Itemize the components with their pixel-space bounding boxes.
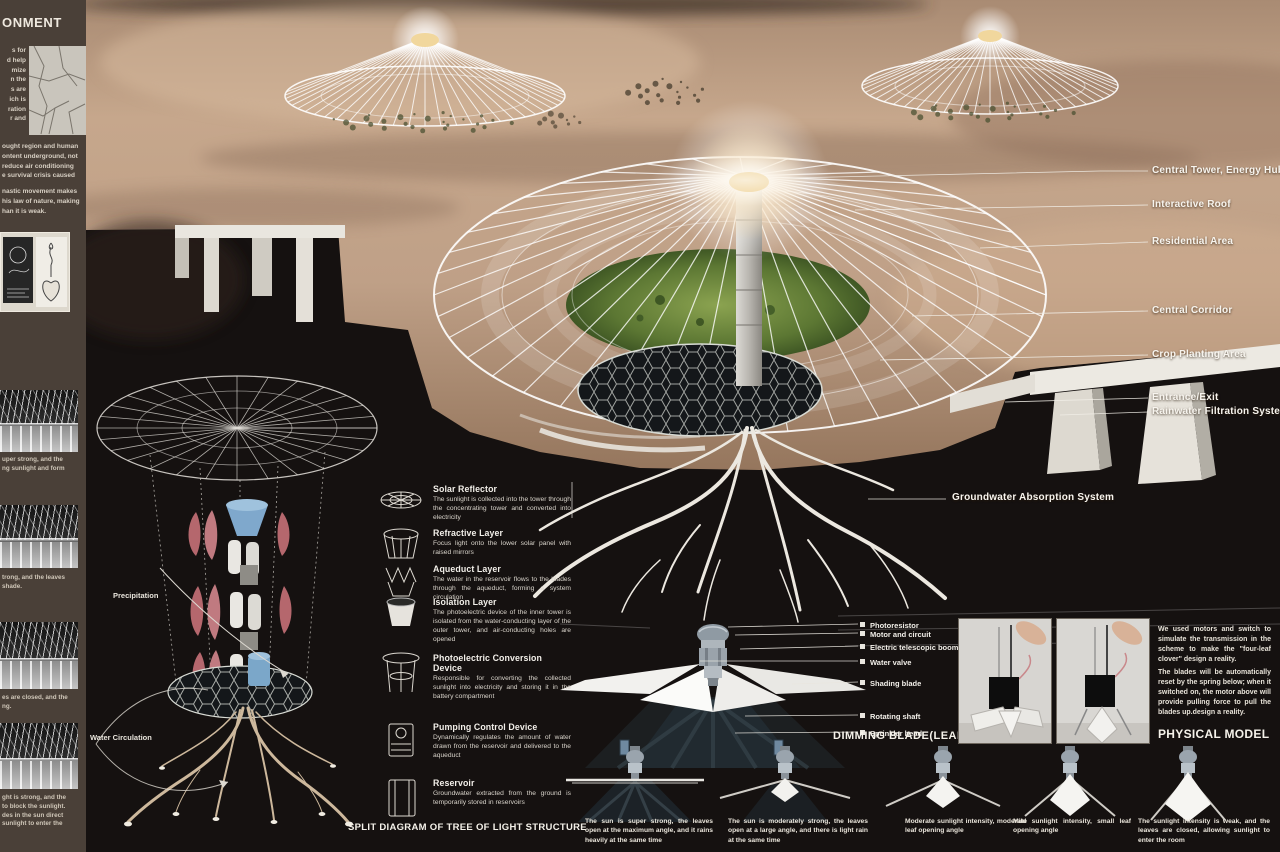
dim-part-motor: Motor and circuit — [860, 630, 931, 639]
blade-stage-1-figure — [560, 744, 710, 822]
stage-caption-2: The sun is moderately strong, the leaves… — [728, 817, 868, 845]
interior-render-2 — [0, 505, 78, 568]
dimming-blade-title: DIMMING BLADE(LEAF) — [833, 730, 968, 742]
stage-caption-1: The sun is super strong, the leaves open… — [585, 817, 713, 845]
label-rainwater-filtration: Rainwater Filtration System — [1152, 406, 1280, 417]
sidebar-header: ONMENT — [2, 15, 62, 30]
interior-caption-1: uper strong, and the ng sunlight and for… — [2, 456, 82, 474]
stage-caption-3: Moderate sunlight intensity, moderate le… — [905, 817, 1027, 836]
bullet-square — [860, 644, 865, 649]
bullet-square — [860, 713, 865, 718]
physical-model-paragraph-2: The blades will be automatically reset b… — [1158, 668, 1271, 718]
dim-part-shading-blade: Shading blade — [860, 679, 921, 688]
label-interactive-roof: Interactive Roof — [1152, 199, 1231, 210]
bullet-square — [860, 680, 865, 685]
stage-caption-4: Mild sunlight intensity, small leaf open… — [1013, 817, 1131, 836]
dim-part-water-valve: Water valve — [860, 658, 911, 667]
physical-model-photo-closed — [1056, 618, 1150, 744]
bullet-square — [860, 659, 865, 664]
blade-stage-2-figure — [710, 744, 860, 822]
interior-render-3 — [0, 622, 78, 689]
component-isolation-layer: Isolation LayerThe photoelectric device … — [433, 597, 571, 644]
label-groundwater-absorption: Groundwater Absorption System — [952, 492, 1114, 503]
bullet-square — [860, 631, 865, 636]
label-central-corridor: Central Corridor — [1152, 305, 1232, 316]
water-circulation-label: Water Circulation — [90, 733, 152, 742]
component-refractive-layer: Refractive LayerFocus light onto the low… — [433, 528, 571, 558]
concept-sketches — [0, 232, 70, 312]
bullet-square — [860, 622, 865, 627]
component-solar-reflector: Solar ReflectorThe sunlight is collected… — [433, 484, 571, 523]
cracked-earth-image — [29, 46, 86, 135]
dim-part-rotating-shaft: Rotating shaft — [860, 712, 920, 721]
component-photoelectric-device: Photoelectric Conversion DeviceResponsib… — [433, 653, 571, 702]
physical-model-photo-open — [958, 618, 1052, 744]
component-reservoir: ReservoirGroundwater extracted from the … — [433, 778, 571, 808]
stage-caption-5: The sunlight intensity is weak, and the … — [1138, 817, 1270, 845]
label-entrance-exit: Entrance/Exit — [1152, 392, 1219, 403]
dim-part-telescopic-boom: Electric telescopic boom — [860, 643, 958, 652]
interior-caption-4: ght is strong, and the to block the sunl… — [2, 794, 82, 829]
interior-caption-3: es are closed, and the ng. — [2, 694, 82, 712]
presentation-board: ONMENT s for d help mize n the s are ich… — [0, 0, 1280, 852]
left-sidebar: ONMENT s for d help mize n the s are ich… — [0, 0, 86, 852]
interior-render-4 — [0, 723, 78, 789]
label-crop-planting: Crop Planting Area — [1152, 349, 1246, 360]
component-icons — [381, 492, 421, 816]
interior-render-1 — [0, 390, 78, 452]
label-residential-area: Residential Area — [1152, 236, 1233, 247]
sidebar-paragraph-1: s for d help mize n the s are ich is rat… — [0, 46, 26, 124]
precipitation-label: Precipitation — [113, 591, 158, 600]
component-pumping-control: Pumping Control DeviceDynamically regula… — [433, 722, 571, 761]
blade-stage-5-figure — [1113, 744, 1263, 822]
physical-model-title: PHYSICAL MODEL — [1158, 727, 1269, 741]
physical-model-paragraph-1: We used motors and switch to simulate th… — [1158, 625, 1271, 665]
interior-caption-2: trong, and the leaves shade. — [2, 574, 82, 592]
dim-part-photoresistor: Photoresistor — [860, 621, 919, 630]
sidebar-paragraph-2: ought region and human ontent undergroun… — [2, 142, 86, 181]
label-central-tower: Central Tower, Energy Hub — [1152, 165, 1280, 176]
sidebar-paragraph-3: nastic movement makes his law of nature,… — [2, 187, 86, 216]
split-diagram-title: SPLIT DIAGRAM OF TREE OF LIGHT STRUCTURE — [348, 822, 587, 833]
